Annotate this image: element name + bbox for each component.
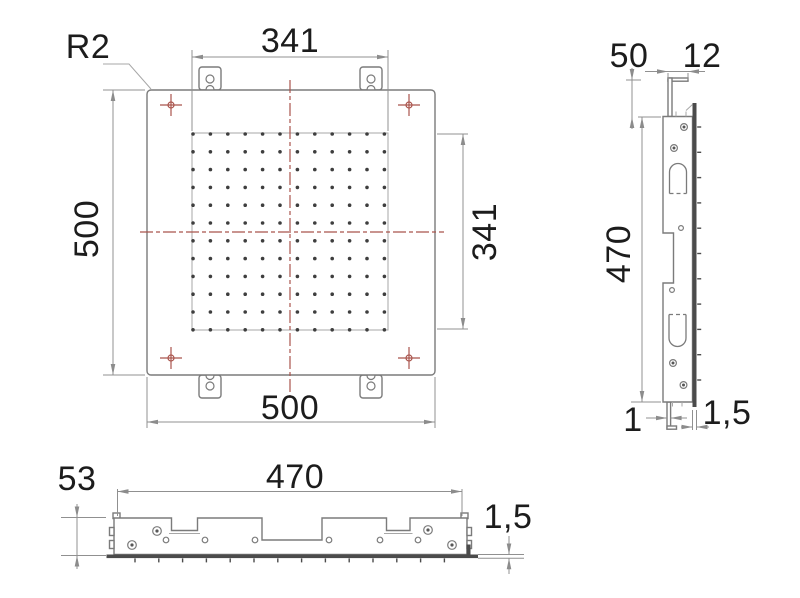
- top-bracket-tab: [668, 78, 688, 117]
- bottom-tab: [667, 402, 677, 429]
- radius-callout: R2: [66, 28, 151, 89]
- dimension-470-side: 470: [600, 117, 661, 402]
- side-nozzle-ticks: [697, 127, 701, 380]
- dimension-50: 50: [610, 37, 649, 129]
- dimension-341-right: 341: [437, 134, 504, 329]
- face-plate-edge: [693, 103, 697, 407]
- dim-label-341-top: 341: [261, 22, 319, 60]
- dim-label-1-5-bottom: 1,5: [484, 498, 533, 536]
- dimension-53: 53: [58, 460, 106, 569]
- drawing-sheet: 341 500 500 341 R2: [0, 0, 800, 598]
- technical-drawing: 341 500 500 341 R2: [0, 0, 800, 598]
- dimension-470-bottom: 470: [118, 458, 463, 516]
- radius-label: R2: [66, 28, 110, 66]
- dimension-500-bottom: 500: [147, 377, 435, 428]
- dimension-1: 1: [623, 401, 687, 439]
- dim-label-1: 1: [623, 401, 642, 439]
- dim-label-470-side: 470: [600, 225, 638, 283]
- dim-label-12: 12: [683, 37, 722, 75]
- dimension-12: 12: [645, 37, 721, 80]
- dim-label-500-left: 500: [68, 200, 106, 258]
- dim-label-341-right: 341: [466, 203, 504, 261]
- side-view: 50 12 470 1 1,5: [600, 37, 751, 439]
- bottom-nozzle-ticks: [135, 558, 444, 562]
- bottom-housing-outline: [114, 518, 467, 555]
- dim-label-500-bottom: 500: [261, 389, 319, 427]
- dim-label-50: 50: [610, 37, 649, 75]
- dimension-500-left: 500: [68, 90, 145, 375]
- front-view: 341 500 500 341 R2: [66, 22, 504, 428]
- dim-label-1-5-side: 1,5: [703, 394, 752, 432]
- side-body-outline: [663, 117, 693, 403]
- dim-label-53: 53: [58, 460, 97, 498]
- dimension-1-5-bottom: 1,5: [478, 498, 532, 574]
- dim-label-470-bottom: 470: [266, 458, 324, 496]
- face-plate-bottom: [107, 555, 479, 559]
- bottom-view: 53 470 1,5: [58, 458, 533, 574]
